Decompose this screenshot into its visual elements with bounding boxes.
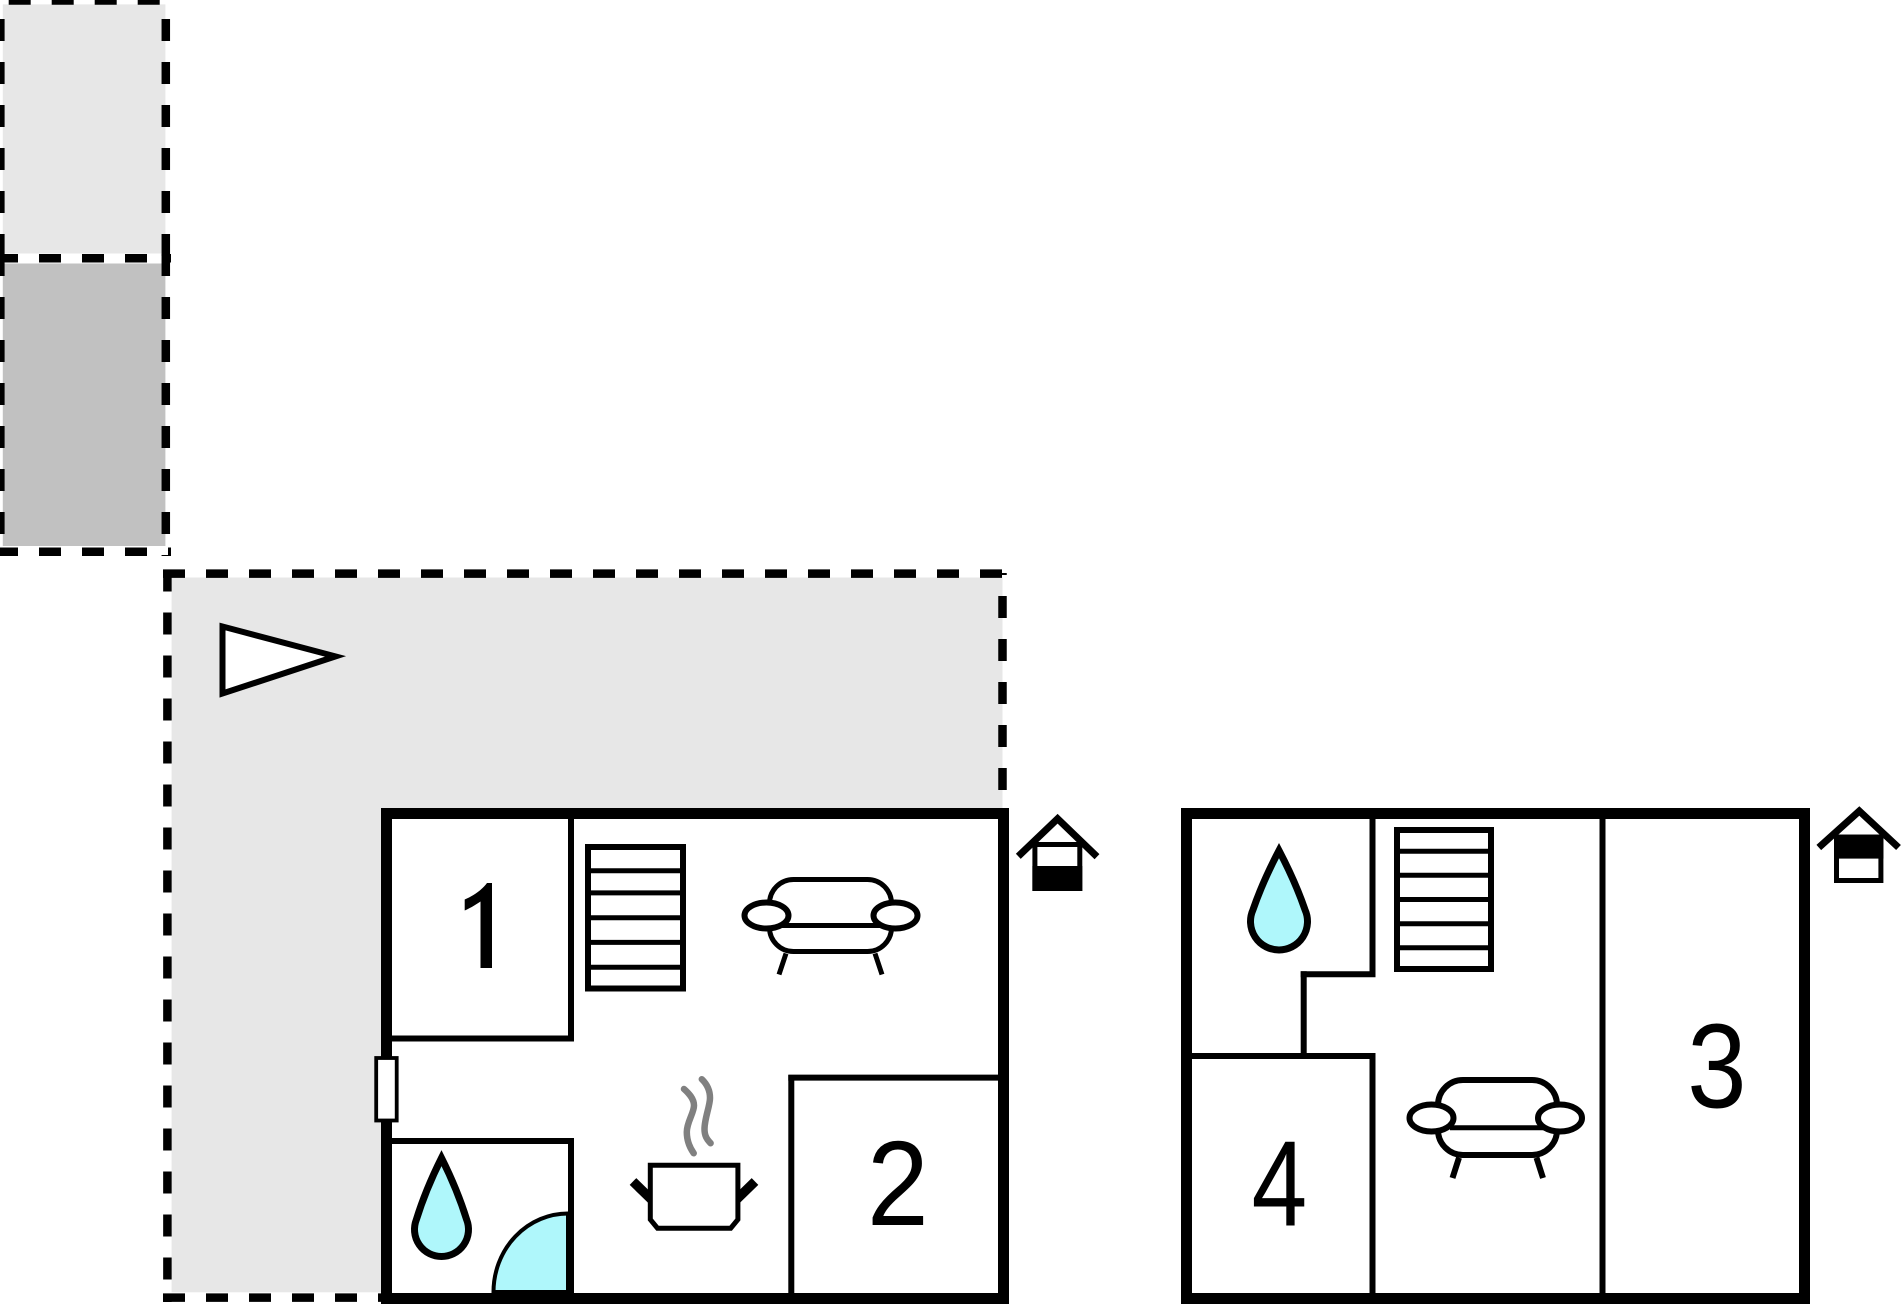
- svg-text:3: 3: [1687, 1000, 1746, 1134]
- svg-text:2: 2: [867, 1116, 929, 1252]
- svg-text:4: 4: [1252, 1115, 1308, 1252]
